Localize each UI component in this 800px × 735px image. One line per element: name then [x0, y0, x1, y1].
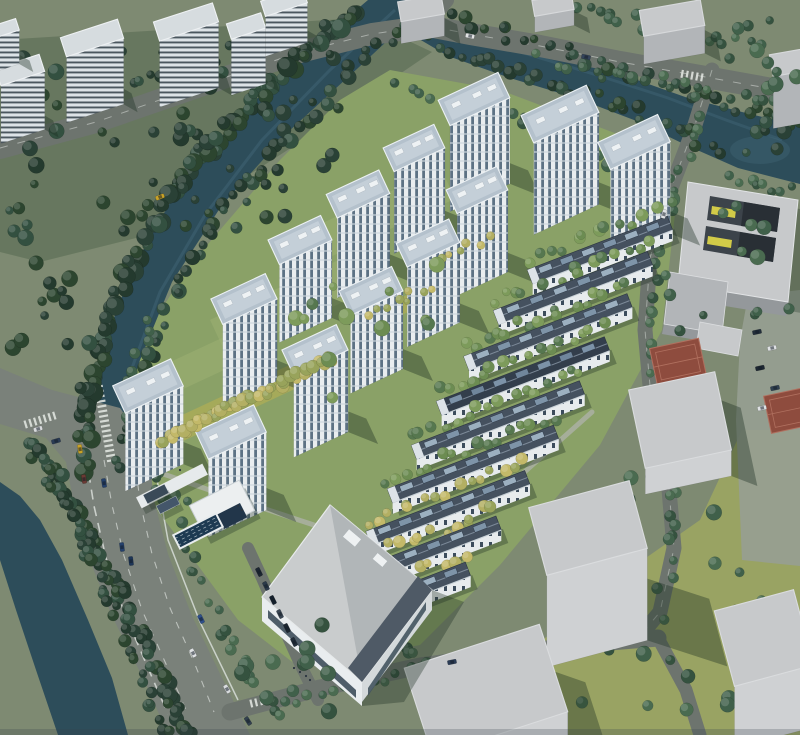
person [237, 505, 239, 507]
bottom-edge-shade [0, 729, 800, 735]
person [309, 679, 311, 681]
car [119, 542, 124, 551]
person [299, 671, 301, 673]
aerial-render-canvas [0, 0, 800, 735]
aerial-site-rendering [0, 0, 800, 735]
person [241, 509, 243, 511]
person [293, 667, 295, 669]
car [128, 556, 133, 565]
person [305, 675, 307, 677]
person [179, 469, 181, 471]
